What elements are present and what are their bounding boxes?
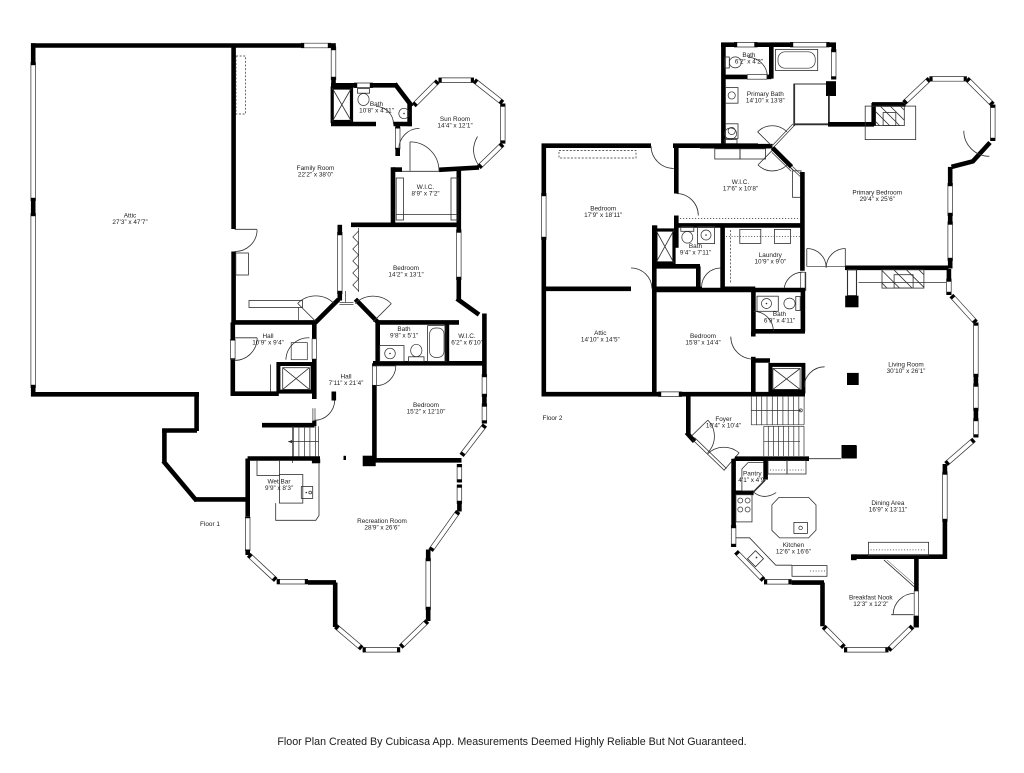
svg-text:8’9” x 7’2”: 8’9” x 7’2” <box>411 190 439 197</box>
svg-text:Floor 1: Floor 1 <box>200 521 220 528</box>
svg-text:17’6” x 10’8”: 17’6” x 10’8” <box>723 185 758 192</box>
svg-text:14’10” x 13’8”: 14’10” x 13’8” <box>746 97 785 104</box>
svg-text:9’8” x 5’1”: 9’8” x 5’1” <box>390 332 418 339</box>
svg-text:6’9” x 4’11”: 6’9” x 4’11” <box>764 317 795 324</box>
svg-text:30’10” x 26’1”: 30’10” x 26’1” <box>887 368 926 375</box>
svg-text:10’4” x 10’4”: 10’4” x 10’4” <box>706 422 741 429</box>
svg-text:14’4” x 12’1”: 14’4” x 12’1” <box>437 122 472 129</box>
svg-text:10’8” x 4’11”: 10’8” x 4’11” <box>359 107 394 114</box>
svg-text:9’4” x 7’11”: 9’4” x 7’11” <box>680 249 711 256</box>
svg-text:28’9” x 26’6”: 28’9” x 26’6” <box>364 524 399 531</box>
svg-text:29’4” x 25’6”: 29’4” x 25’6” <box>860 196 895 203</box>
svg-text:6’2” x 6’10”: 6’2” x 6’10” <box>451 339 483 346</box>
svg-text:14’10” x 14’5”: 14’10” x 14’5” <box>581 336 620 343</box>
svg-text:10’9” x 9’4”: 10’9” x 9’4” <box>252 339 284 346</box>
svg-text:9’9” x 8’3”: 9’9” x 8’3” <box>265 485 293 492</box>
svg-text:12’6” x 16’6”: 12’6” x 16’6” <box>776 548 811 555</box>
svg-text:6’2” x 4’2”: 6’2” x 4’2” <box>735 58 763 65</box>
svg-text:15’2” x 12’10”: 15’2” x 12’10” <box>407 408 446 415</box>
svg-text:10’9” x 9’0”: 10’9” x 9’0” <box>754 258 786 265</box>
svg-text:Floor 2: Floor 2 <box>543 415 563 422</box>
svg-text:12’3” x 12’2”: 12’3” x 12’2” <box>853 601 888 608</box>
svg-text:15’8” x 14’4”: 15’8” x 14’4” <box>685 339 720 346</box>
svg-text:17’9” x 18’11”: 17’9” x 18’11” <box>584 212 622 219</box>
svg-text:4’1” x 4’9”: 4’1” x 4’9” <box>738 477 766 484</box>
svg-text:16’9” x 13’11”: 16’9” x 13’11” <box>869 506 907 513</box>
svg-text:27’3” x 47’7”: 27’3” x 47’7” <box>112 219 147 226</box>
svg-text:7’11” x 21’4”: 7’11” x 21’4” <box>329 380 364 387</box>
svg-text:22’2” x 38’0”: 22’2” x 38’0” <box>298 171 333 178</box>
svg-text:14’2” x 13’1”: 14’2” x 13’1” <box>388 271 423 278</box>
svg-text:Floor Plan Created By Cubicasa: Floor Plan Created By Cubicasa App. Meas… <box>277 736 746 748</box>
